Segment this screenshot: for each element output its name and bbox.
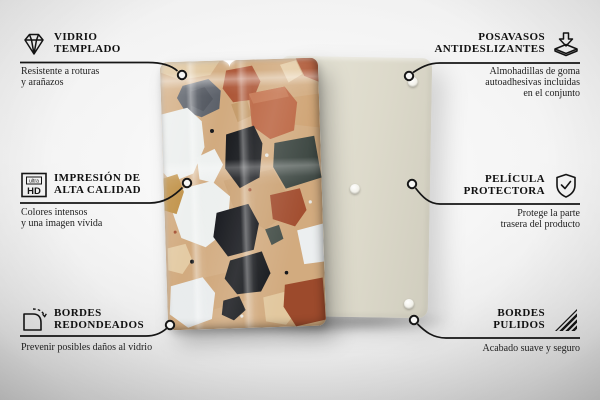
feature-title: BORDES REDONDEADOS	[54, 306, 144, 331]
diamond-icon	[20, 30, 48, 58]
feature-description: Colores intensos y una imagen vívida	[21, 207, 102, 229]
feature-description: Prevenir posibles daños al vidrio	[21, 342, 152, 353]
feature-print-quality: ultra HD IMPRESIÓN DE ALTA CALIDAD Color…	[18, 171, 188, 199]
product-infographic: ✦	[0, 0, 600, 400]
feature-tempered-glass: VIDRIO TEMPLADO Resistente a roturas y a…	[18, 30, 188, 58]
rubber-pad	[350, 184, 360, 194]
feature-title: IMPRESIÓN DE ALTA CALIDAD	[54, 171, 141, 196]
feature-description: Protege la parte trasera del producto	[501, 208, 580, 230]
feature-title: PELÍCULA PROTECTORA	[464, 172, 545, 197]
svg-text:ultra: ultra	[29, 178, 39, 184]
svg-text:HD: HD	[27, 186, 41, 197]
feature-rounded-edges: BORDES REDONDEADOS Prevenir posibles dañ…	[18, 306, 188, 334]
feature-polished-edges: BORDES PULIDOS Acabado suave y seguro	[410, 306, 580, 334]
rubber-pad	[408, 77, 418, 87]
feature-non-slip-pads: POSAVASOS ANTIDESLIZANTES Almohadillas d…	[410, 30, 580, 58]
protective-film-icon	[552, 172, 580, 200]
rounded-corner-icon	[20, 306, 48, 334]
feature-title: BORDES PULIDOS	[493, 306, 545, 331]
sparkle-icon: ✦	[222, 58, 238, 73]
feature-title: VIDRIO TEMPLADO	[54, 30, 121, 55]
feature-title: POSAVASOS ANTIDESLIZANTES	[434, 30, 545, 55]
feature-description: Resistente a roturas y arañazos	[21, 66, 99, 88]
ultra-hd-icon: ultra HD	[20, 171, 48, 199]
polished-edges-icon	[552, 306, 580, 334]
feature-description: Acabado suave y seguro	[483, 343, 580, 354]
non-slip-pads-icon	[552, 30, 580, 58]
feature-protective-film: PELÍCULA PROTECTORA Protege la parte tra…	[410, 172, 580, 200]
feature-description: Almohadillas de goma autoadhesivas inclu…	[485, 66, 580, 99]
